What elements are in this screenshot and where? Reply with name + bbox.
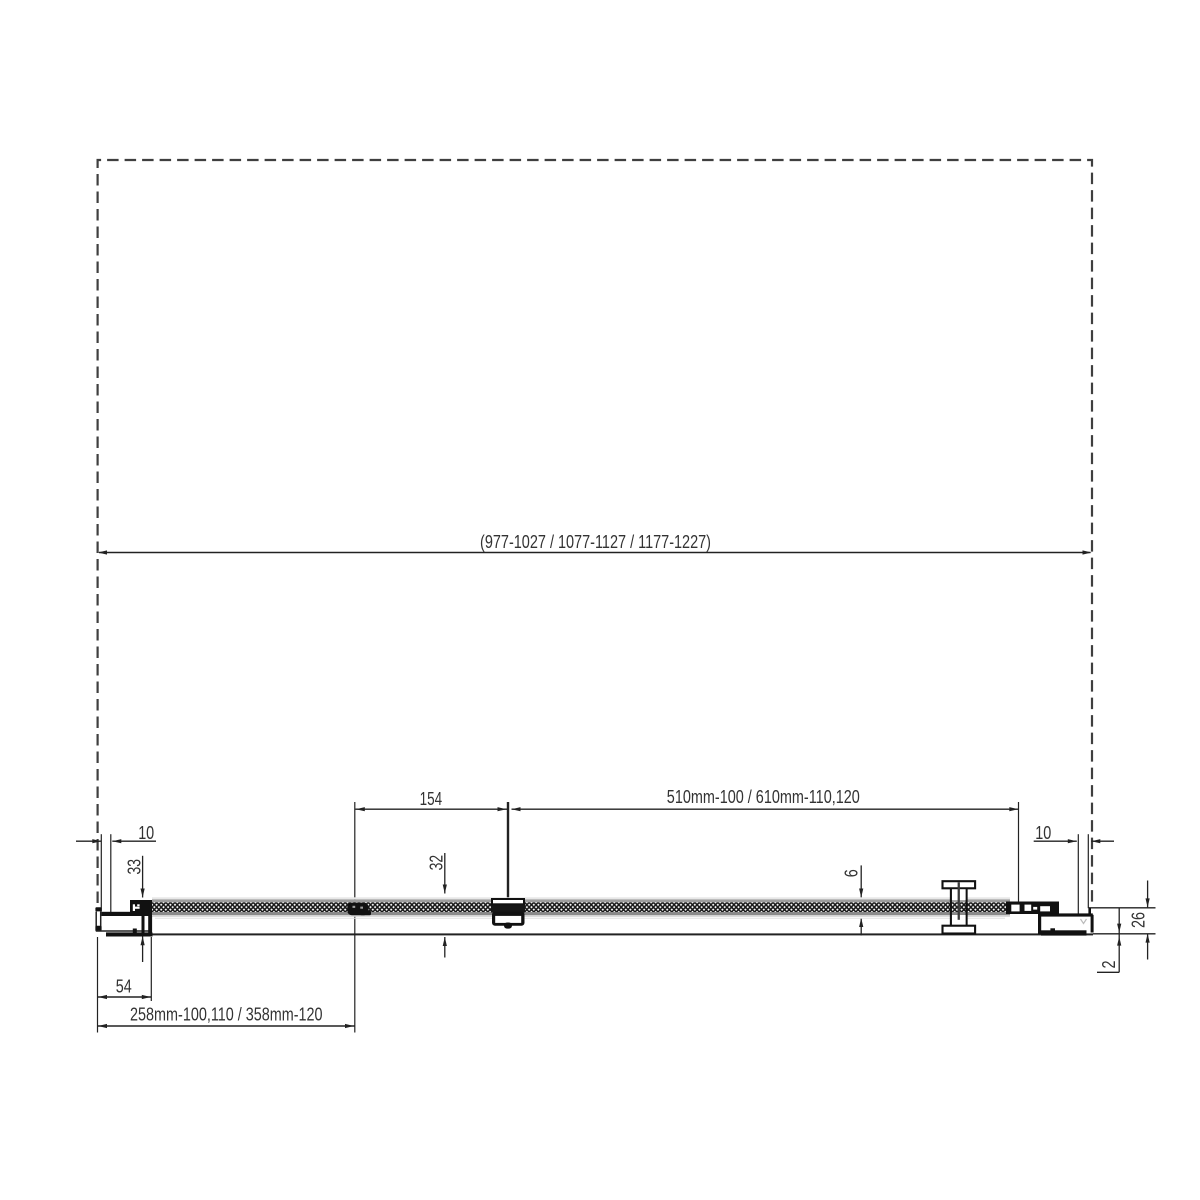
- svg-text:32: 32: [426, 855, 446, 871]
- svg-text:154: 154: [420, 789, 443, 809]
- svg-text:10: 10: [138, 823, 154, 843]
- svg-text:33: 33: [125, 859, 145, 875]
- svg-text:258mm-100,110 / 358mm-120: 258mm-100,110 / 358mm-120: [130, 1005, 323, 1025]
- svg-text:54: 54: [116, 977, 132, 997]
- svg-text:2: 2: [1099, 961, 1119, 969]
- svg-text:510mm-100 / 610mm-110,120: 510mm-100 / 610mm-110,120: [667, 787, 860, 807]
- svg-text:10: 10: [1035, 823, 1051, 843]
- svg-text:6: 6: [842, 869, 862, 877]
- svg-text:(977-1027 / 1077-1127 / 1177-1: (977-1027 / 1077-1127 / 1177-1227): [480, 532, 711, 552]
- svg-text:26: 26: [1128, 912, 1148, 928]
